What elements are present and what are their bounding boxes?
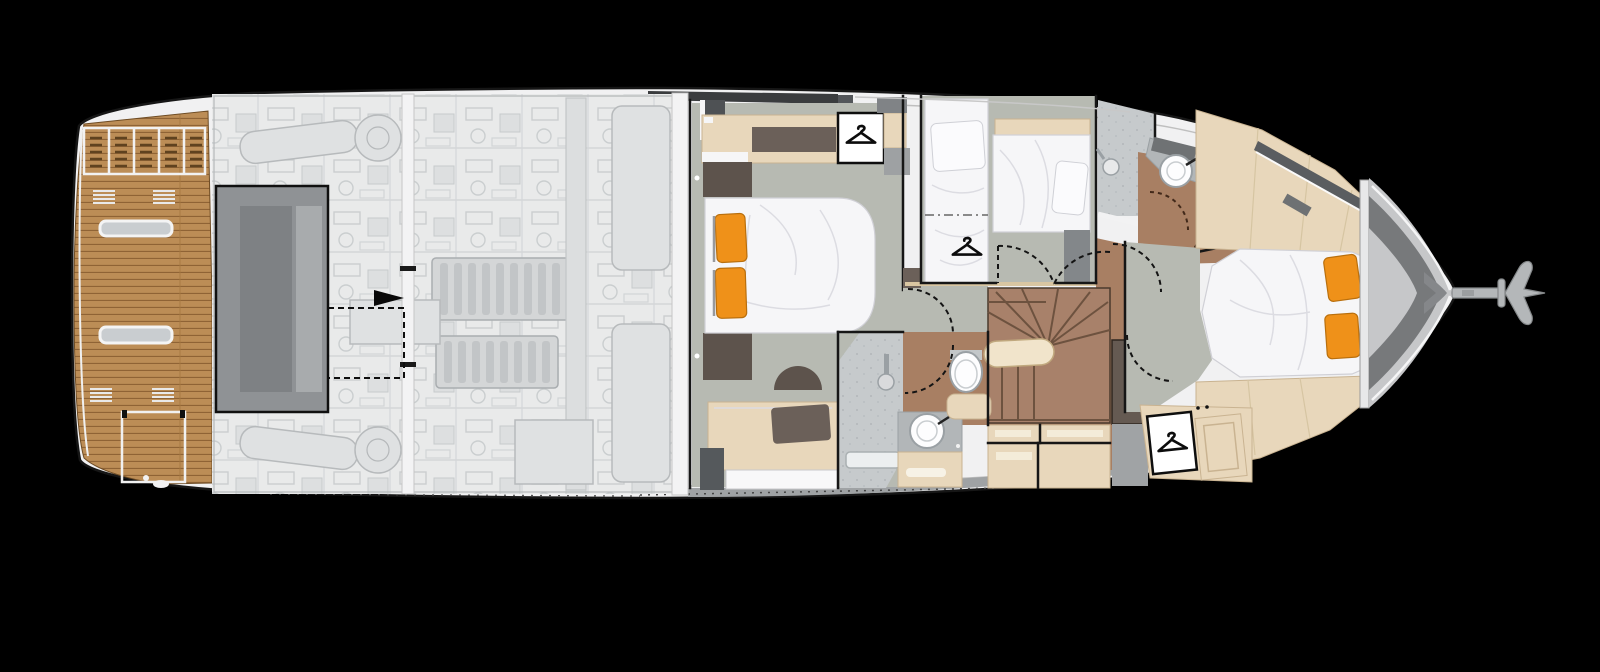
deck-plan-svg [0, 0, 1600, 672]
forward-closet [1147, 412, 1197, 474]
equipment-box [515, 420, 593, 484]
staircase [983, 288, 1110, 423]
guest-bed-2-headboard [995, 119, 1090, 135]
anchor-shaft [1452, 288, 1502, 298]
aft-bed [705, 198, 875, 333]
aft-sink [910, 414, 944, 448]
aft-cabinet-dark [700, 448, 724, 490]
gate-handle [153, 480, 169, 488]
guest-bed-1-pillow [930, 120, 985, 172]
aft-bed-pillow-1 [715, 213, 747, 263]
swim-platform [74, 111, 212, 488]
guest-bed-2-pillow [1051, 160, 1088, 215]
aft-bed-pillow-2 [715, 267, 747, 318]
aft-sideboard-cushion [752, 127, 836, 152]
desk-chair-seat [771, 404, 831, 444]
desk-drawer [726, 470, 838, 489]
aft-head-shelf [947, 394, 991, 419]
generator [350, 300, 440, 344]
muffler-starboard-end [355, 427, 401, 473]
tank-top [612, 106, 670, 270]
anchor-flukes [1505, 261, 1545, 324]
forward-sink [1160, 155, 1192, 187]
guest-cabin-unit [1064, 230, 1090, 283]
shower-step [846, 452, 900, 468]
tank-bottom [612, 324, 670, 482]
nightstand-aft-bottom [703, 333, 752, 380]
aft-wardrobe [838, 113, 884, 163]
forward-bed-pillow-1 [1323, 254, 1362, 302]
shower-head-icon [1103, 159, 1119, 175]
nightstand-aft-top [703, 162, 752, 197]
guest-cabin [903, 96, 1096, 288]
bow-bulkhead [1360, 180, 1369, 408]
stair-side-step [1112, 424, 1148, 486]
engine-room-divider [402, 94, 414, 494]
platform-hatch-2 [100, 327, 172, 343]
engine-block-2 [436, 336, 558, 388]
cockpit-inner-dark [240, 206, 292, 392]
anchor-icon [1452, 261, 1545, 324]
corridor-floor [903, 283, 988, 332]
stair-handrail [983, 338, 1054, 368]
main-bulkhead [672, 93, 688, 495]
forward-bed [1202, 249, 1366, 377]
deck-plan-image [0, 0, 1600, 672]
cockpit-inner-light [296, 206, 322, 392]
aft-toilet [950, 350, 982, 392]
lower-cabinets [988, 425, 1110, 488]
forward-bed-pillow-2 [1325, 313, 1361, 359]
platform-hatch-1 [100, 221, 172, 236]
shower-rod [884, 354, 889, 376]
muffler-port-end [355, 115, 401, 161]
bow-locker [1369, 178, 1452, 408]
engine-block-1 [432, 258, 584, 320]
anchor-crossbar [1498, 279, 1505, 307]
shower-head-icon [878, 374, 894, 390]
